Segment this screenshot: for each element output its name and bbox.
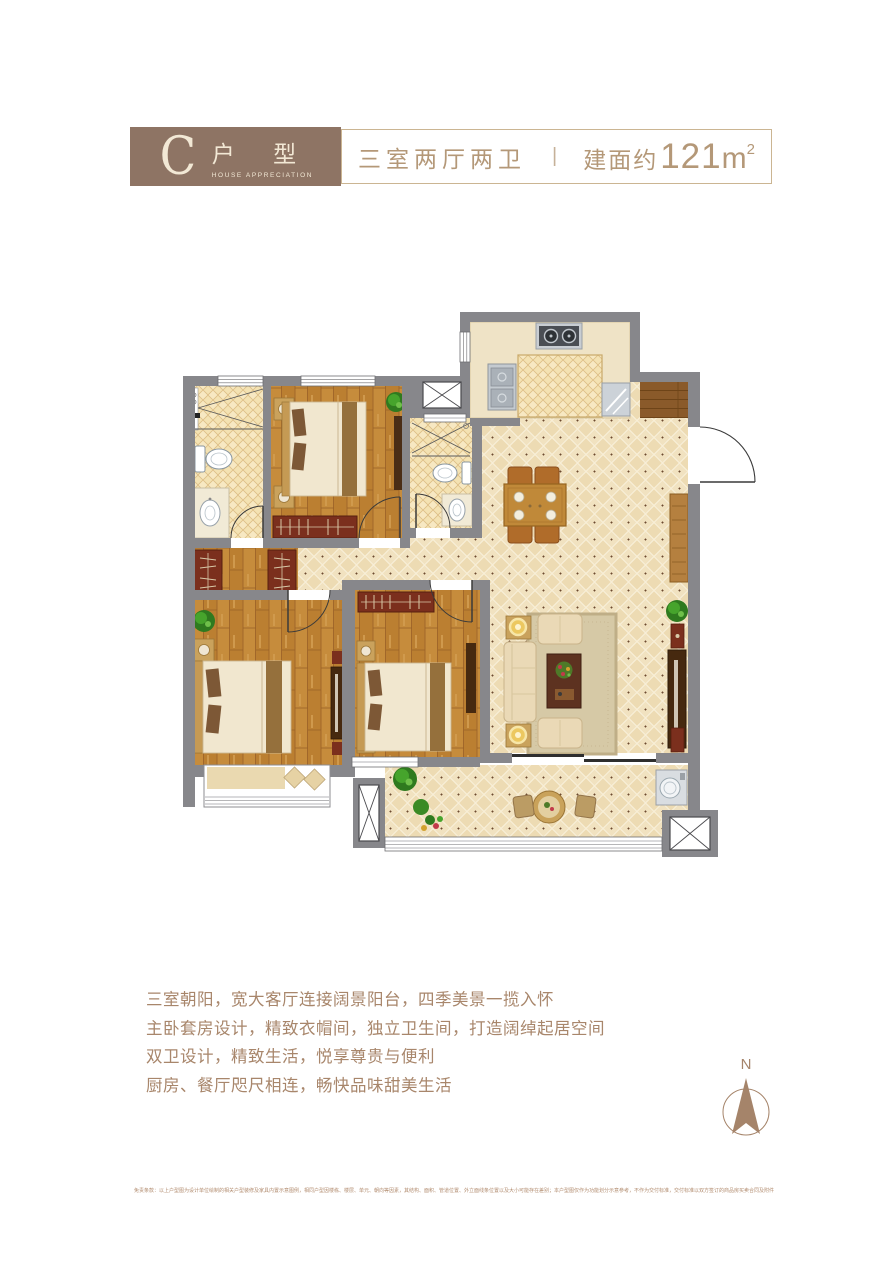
side-table-lamp-icon xyxy=(506,616,531,639)
window-icon xyxy=(424,414,466,422)
window-icon xyxy=(301,376,375,386)
window-icon xyxy=(218,376,263,386)
unit-letter: C xyxy=(160,131,197,183)
plant-icon xyxy=(666,600,688,622)
dining-set-icon xyxy=(504,467,566,543)
dresser-icon xyxy=(466,643,476,713)
sliding-door-icon xyxy=(512,754,656,762)
side-table-lamp-icon xyxy=(506,724,531,747)
nightstand-icon xyxy=(194,639,214,661)
tv-cabinet-icon xyxy=(331,667,343,739)
feature-line: 厨房、餐厅咫尺相连，畅快品味甜美生活 xyxy=(146,1072,706,1101)
compass: N xyxy=(717,1056,775,1145)
vanity-sink-icon xyxy=(193,488,229,538)
fridge-icon xyxy=(602,383,630,416)
patio-table-icon xyxy=(533,791,565,823)
window-icon xyxy=(352,757,418,767)
stove-icon xyxy=(536,323,582,349)
bed-icon xyxy=(357,663,451,751)
unit-badge: C 户 型 HOUSE APPRECIATION xyxy=(130,127,341,186)
feature-line: 主卧套房设计，精致衣帽间，独立卫生间，打造阔绰起居空间 xyxy=(146,1015,706,1044)
wardrobe-icon xyxy=(268,550,296,596)
shaft-icon xyxy=(670,817,710,850)
spec-rooms: 三室两厅两卫 xyxy=(358,140,526,174)
spec-area-prefix: 建面约 xyxy=(583,141,658,175)
window-icon xyxy=(460,332,470,362)
spec-area-sup: 2 xyxy=(747,141,755,158)
wardrobe-icon xyxy=(194,550,222,596)
unit-sublabel: HOUSE APPRECIATION xyxy=(212,172,313,179)
spec-divider: | xyxy=(552,145,557,168)
dining-table-icon xyxy=(504,484,566,526)
vanity-sink-icon xyxy=(442,494,472,526)
console-cabinet-icon xyxy=(670,494,688,582)
compass-icon xyxy=(717,1074,775,1140)
nightstand-icon xyxy=(357,641,375,661)
patio-chair-icon xyxy=(575,795,597,818)
feature-list: 三室朝阳，宽大客厅连接阔景阳台，四季美景一揽入怀 主卧套房设计，精致衣帽间，独立… xyxy=(146,986,706,1100)
wardrobe-icon xyxy=(273,516,357,538)
sofa-set-icon xyxy=(504,614,616,754)
floorplan-image xyxy=(178,310,758,858)
toilet-icon xyxy=(433,462,471,484)
coffee-table-icon xyxy=(547,654,581,708)
shaft-icon xyxy=(359,785,379,841)
spec-area-value: 121 xyxy=(660,137,721,177)
speaker-icon xyxy=(332,651,343,664)
plant-icon xyxy=(393,767,417,791)
feature-line: 双卫设计，精致生活，悦享尊贵与便利 xyxy=(146,1043,706,1072)
spec-area-unit: m xyxy=(722,142,747,176)
spec-bar: 三室两厅两卫 | 建面约 121 m 2 xyxy=(341,129,772,184)
kitchen-sink-icon xyxy=(488,364,516,410)
feature-line: 三室朝阳，宽大客厅连接阔景阳台，四季美景一揽入怀 xyxy=(146,986,706,1015)
bed-icon xyxy=(194,661,291,753)
shaft-icon xyxy=(423,382,461,408)
unit-label: 户 型 xyxy=(212,135,312,169)
spec-area: 建面约 121 m 2 xyxy=(583,137,755,177)
disclaimer-text: 免责条款：以上户型图为设计单位绘制的相关户型装修及家具内置示意图例，相同户型因楼… xyxy=(134,1187,774,1194)
patio-chair-icon xyxy=(513,795,535,818)
compass-north-label: N xyxy=(717,1056,775,1073)
sofa-icon xyxy=(504,642,536,722)
bay-window-icon xyxy=(204,765,330,807)
speaker-icon xyxy=(671,728,684,752)
plant-icon xyxy=(193,610,215,632)
page: C 户 型 HOUSE APPRECIATION 三室两厅两卫 | 建面约 12… xyxy=(0,0,889,1278)
speaker-icon xyxy=(332,742,343,755)
bed-icon xyxy=(282,402,366,496)
wardrobe-icon xyxy=(358,592,434,612)
washing-machine-icon xyxy=(656,770,687,805)
entry-door-icon xyxy=(688,427,755,484)
balcony-glazing-icon xyxy=(385,837,662,851)
dresser-icon xyxy=(394,416,403,490)
